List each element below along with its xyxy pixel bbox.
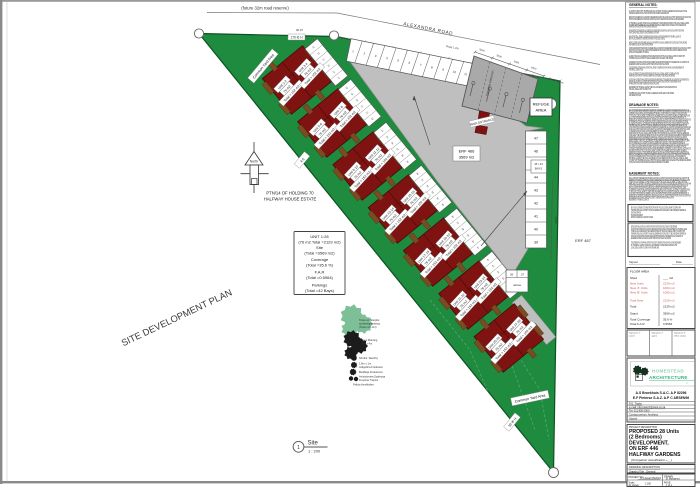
svg-text:THE LOCAL CODE ALL WORK TO COM: THE LOCAL CODE ALL WORK TO COMPLY WITH: [629, 88, 651, 91]
svg-text:Site: Site: [316, 245, 324, 250]
svg-text:agent: agent: [652, 334, 658, 337]
svg-text:Anisodontea Scabrosa: Anisodontea Scabrosa: [359, 375, 386, 379]
svg-text:PTN/14 OF HOLDING 70: PTN/14 OF HOLDING 70: [266, 191, 314, 196]
svg-text:39: 39: [534, 241, 538, 245]
svg-text:2129 m2: 2129 m2: [663, 282, 675, 286]
svg-text:27: 27: [521, 273, 525, 277]
svg-text:Total New: Total New: [630, 299, 644, 303]
svg-text:Shrubs: Sketchy: Shrubs: Sketchy: [359, 356, 379, 360]
svg-text:WITH MAIN CONTRACTOR ALL ROOMS: WITH MAIN CONTRACTOR ALL ROOMS TO UNDERV…: [629, 82, 659, 85]
svg-text:New 'B' Units: New 'B' Units: [630, 291, 648, 295]
svg-text:AREA: AREA: [536, 108, 547, 113]
svg-text:45 / 44: 45 / 44: [534, 162, 543, 166]
svg-text:CHECKED AND VERIFIED ON SITE A: CHECKED AND VERIFIED ON SITE AT MAIN CON…: [629, 12, 669, 15]
svg-text:e-mail: info.hsarch@work.co.za: e-mail: info.hsarch@work.co.za: [629, 405, 666, 409]
svg-text:ENGINEERS DETAIL BOUNDARY WALL: ENGINEERS DETAIL BOUNDARY WALLS AS PER L…: [629, 63, 669, 66]
svg-text:Date: Date: [676, 260, 682, 264]
svg-text:owner: owner: [629, 334, 635, 337]
svg-text:(Total =35.6 %): (Total =35.6 %): [306, 263, 334, 268]
svg-text:1: 1: [297, 445, 300, 451]
svg-text:44: 44: [534, 176, 538, 180]
svg-text:35.6 %: 35.6 %: [663, 318, 673, 322]
svg-text:BE IN FULL ACCORDANCE TO SANS: BE IN FULL ACCORDANCE TO SANS SPECIFICAT…: [629, 37, 665, 40]
svg-text:ENGINEERS DETAIL BOUNDARY WALL: ENGINEERS DETAIL BOUNDARY WALLS AS PER L…: [631, 237, 671, 240]
svg-text:LOCAL CODE ALL WORK TO COMPLY: LOCAL CODE ALL WORK TO COMPLY WITH THE N…: [631, 246, 659, 249]
svg-text:THE NBR ALL GLAZING TO BE: THE NBR ALL GLAZING TO BE: [629, 69, 643, 72]
svg-text:(Trees min 4m): (Trees min 4m): [359, 325, 377, 329]
svg-text:AND VERIFIED ON SITE AT MAIN C: AND VERIFIED ON SITE AT MAIN CONTRACTOR …: [629, 43, 653, 46]
svg-text:1 of 1: 1 of 1: [666, 484, 673, 487]
svg-text:office stamp: office stamp: [674, 334, 687, 337]
svg-text:41: 41: [534, 215, 538, 219]
svg-text:Signature 3:: Signature 3:: [674, 332, 686, 335]
svg-text:New Planting: New Planting: [362, 338, 378, 342]
svg-text:40: 40: [534, 228, 538, 232]
svg-text:FLOOR AREA: FLOOR AREA: [630, 270, 649, 274]
svg-text:(Total =3569 m2): (Total =3569 m2): [304, 251, 335, 256]
svg-text:Contact person: Architect: Contact person: Architect: [629, 412, 658, 416]
svg-text:Trees on Site/plot: Trees on Site/plot: [359, 318, 380, 322]
svg-text:NATURAL LIGHTING REQUIREMENTS: NATURAL LIGHTING REQUIREMENTS OF THE NBR…: [629, 51, 649, 54]
svg-text:cc: cc: [686, 383, 688, 385]
svg-text:HALFWAY GARDENS: HALFWAY GARDENS: [629, 452, 681, 458]
svg-text:screening/existing: screening/existing: [359, 322, 380, 326]
svg-text:CONDITIONS TO BE DETERMINED ON: CONDITIONS TO BE DETERMINED ON SITE WITH…: [629, 18, 684, 21]
svg-text:New Units: New Units: [630, 282, 644, 286]
svg-text:refuse: refuse: [513, 283, 522, 287]
svg-text:REQUIREMENTS OF THE NBR ALL GL: REQUIREMENTS OF THE NBR ALL GLAZING TO: [629, 198, 649, 201]
svg-text:AND VERIFIED ON SITE AT: AND VERIFIED ON SITE AT: [629, 94, 641, 97]
svg-text:Buddleja Frutescens: Buddleja Frutescens: [359, 370, 383, 374]
svg-text:EASEMENT NOTES:: EASEMENT NOTES:: [629, 172, 660, 176]
svg-text:NHBRC AND LOCAL AUTHORITY BYLA: NHBRC AND LOCAL AUTHORITY BYLAWS ALL SEW…: [629, 74, 675, 77]
svg-text:Signature 1:: Signature 1:: [629, 332, 641, 335]
svg-text:(76 m2 Total =2129 m2): (76 m2 Total =2129 m2): [298, 240, 341, 245]
svg-text:REINFORCING TO ENGINEERS SPEC: REINFORCING TO ENGINEERS SPEC ALL FOUNDA…: [631, 216, 653, 219]
svg-text:0.5964: 0.5964: [663, 322, 673, 326]
svg-text:2129 m2: 2129 m2: [663, 299, 675, 303]
svg-text:Parkings: Parkings: [312, 283, 328, 288]
svg-text:(Total =0.5964): (Total =0.5964): [306, 275, 333, 280]
svg-text:F.A.R: F.A.R: [315, 270, 325, 275]
svg-text:As shown: As shown: [629, 484, 640, 487]
svg-text:1064 m2: 1064 m2: [663, 286, 675, 290]
svg-text:Total F.A.R: Total F.A.R: [630, 322, 645, 326]
svg-text:REFUGE: REFUGE: [533, 102, 550, 107]
svg-text:HALFWAY HOUSE ESTATE: HALFWAY HOUSE ESTATE: [264, 197, 317, 202]
svg-text:36.97: 36.97: [296, 28, 303, 32]
svg-text:Total: Total: [630, 305, 637, 309]
svg-text:ARCHITECTURE: ARCHITECTURE: [649, 375, 688, 380]
svg-text:DRAINAGE NOTES:: DRAINAGE NOTES:: [629, 103, 659, 107]
svg-text:E.F Pieterse S.A.Z. A.P C ARSE: E.F Pieterse S.A.Z. A.P C ARSEN96: [633, 396, 689, 400]
svg-text:(Occupation classification +__: (Occupation classification +__): [631, 458, 672, 462]
svg-text:DRAWING DESCRIPTION: DRAWING DESCRIPTION: [629, 465, 660, 469]
svg-text:Site: Site: [308, 441, 319, 447]
svg-text:Total Coverage: Total Coverage: [630, 318, 651, 322]
svg-text:Signed: Signed: [629, 260, 638, 264]
svg-text:3569 m2: 3569 m2: [663, 312, 675, 316]
svg-text:(Total =42 Bays): (Total =42 Bays): [305, 288, 335, 293]
svg-text:2129 m2: 2129 m2: [663, 305, 675, 309]
svg-text:P.O. Thabo: P.O. Thabo: [629, 401, 642, 405]
svg-text:1.8m x 1m: 1.8m x 1m: [359, 362, 371, 366]
svg-text:4m + 4m: 4m + 4m: [362, 342, 372, 346]
svg-text:Freylinia Tropica: Freylinia Tropica: [359, 378, 379, 382]
svg-text:47: 47: [534, 137, 538, 141]
svg-text:46: 46: [534, 150, 538, 154]
svg-text:A.S Broekhuis S.A.C. A.P 82296: A.S Broekhuis S.A.C. A.P 82296: [636, 391, 687, 395]
svg-text:THE NHBRC AND LOCAL AUTHORITY: THE NHBRC AND LOCAL AUTHORITY BYLAWS ALL…: [629, 57, 673, 60]
svg-text:43.93: 43.93: [554, 217, 558, 224]
svg-text:3569 m2: 3569 m2: [459, 155, 475, 160]
svg-text:New 'A' Units: New 'A' Units: [630, 286, 648, 290]
svg-text:ON SITE AT MAIN CONTRACTOR MIN: ON SITE AT MAIN CONTRACTOR MIN CONCRETE …: [629, 161, 669, 164]
svg-text:UNIT 1:28: UNIT 1:28: [310, 234, 329, 239]
svg-text:ERF 466: ERF 466: [459, 149, 476, 154]
svg-text:Signature 2:: Signature 2:: [652, 332, 664, 335]
svg-text:ERF 487: ERF 487: [575, 238, 592, 243]
svg-text:HOMESTEAD: HOMESTEAD: [652, 369, 684, 374]
svg-text:1:200: 1:200: [645, 483, 652, 486]
svg-text:B. Mohamed: B. Mohamed: [666, 477, 680, 480]
svg-text:VERIFIED ON SITE AT MAIN CONTR: VERIFIED ON SITE AT MAIN CONTRACTOR MIN …: [629, 26, 657, 29]
svg-text:Indigofera Frutticans: Indigofera Frutticans: [359, 365, 383, 369]
svg-text:Stand: Stand: [630, 312, 638, 316]
svg-text:Signed: Signed: [629, 416, 638, 420]
svg-text:Shed: Shed: [630, 276, 637, 280]
svg-text:43: 43: [534, 189, 538, 193]
svg-text:Drawing Title : General: Drawing Title : General: [629, 469, 656, 473]
svg-text:176 I6 H: 176 I6 H: [290, 36, 303, 40]
svg-text:GENERAL NOTES:: GENERAL NOTES:: [629, 3, 657, 7]
svg-text:42: 42: [534, 202, 538, 206]
svg-text:Felicia Amelloides: Felicia Amelloides: [353, 383, 374, 387]
svg-text:Tel: 011 805 0000: Tel: 011 805 0000: [629, 408, 650, 412]
svg-text:Coverage: Coverage: [311, 257, 329, 262]
svg-text:PLASTIC DRAUGHT SEAL CONDITION: PLASTIC DRAUGHT SEAL CONDITIONS TO BE DE…: [629, 32, 659, 35]
svg-text:North: North: [250, 160, 258, 164]
svg-text:1065 m2: 1065 m2: [663, 291, 675, 295]
svg-text:26: 26: [510, 273, 514, 277]
svg-text:___ m2: ___ m2: [662, 276, 673, 280]
svg-text:BAYS: BAYS: [535, 167, 542, 171]
svg-text:1 : 200: 1 : 200: [308, 449, 321, 454]
svg-text:(future 32m road reserve): (future 32m road reserve): [241, 6, 289, 11]
